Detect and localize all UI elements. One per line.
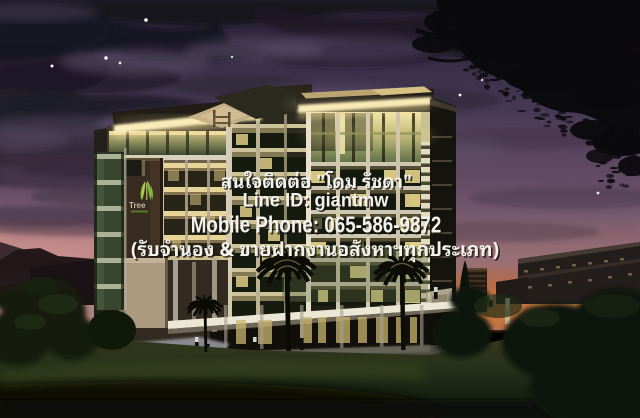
svg-text:Line ID: giantmw: Line ID: giantmw [243,189,389,210]
svg-text:Tree: Tree [129,201,146,210]
svg-text:Mobile Phone: 065-586-9872: Mobile Phone: 065-586-9872 [191,212,442,239]
